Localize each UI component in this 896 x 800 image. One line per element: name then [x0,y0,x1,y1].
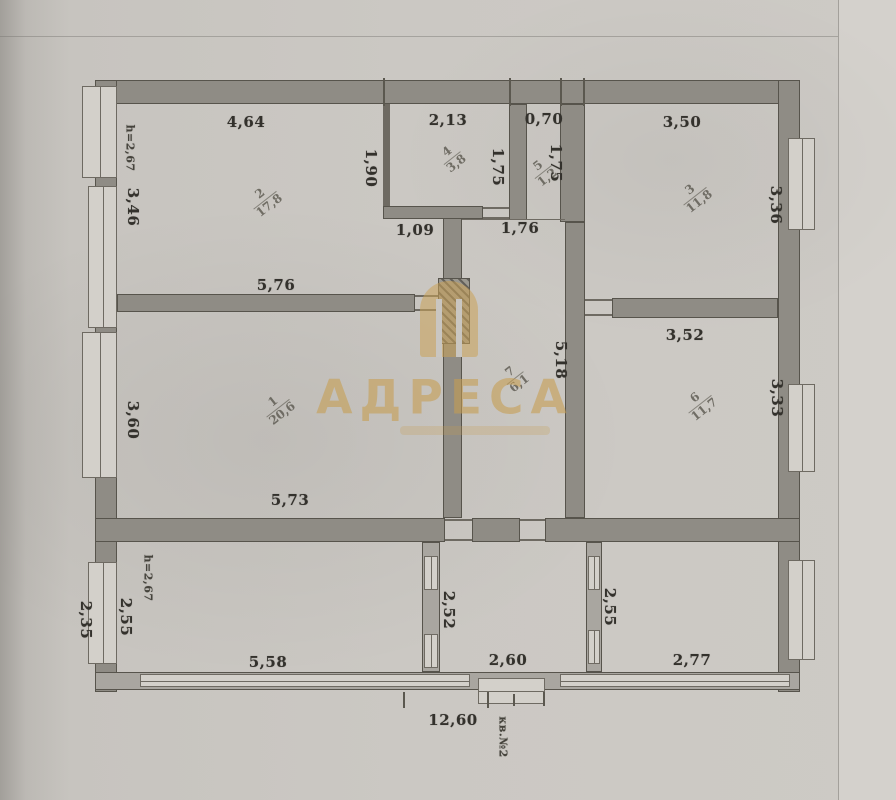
dimension-label: 3,50 [663,113,702,131]
dimension-label: 5,58 [249,653,288,671]
dimension-label: 2,77 [673,651,712,669]
dimension-label: 3,36 [767,186,785,225]
dimension-label: 0,70 [525,110,564,128]
dim-tick [487,692,489,708]
door-jamb [585,299,612,301]
room-label-6: 611,7 [680,384,721,425]
veranda-window [424,556,438,590]
dimension-label: 2,60 [489,651,528,669]
room-label-3: 311,8 [675,176,716,217]
window-left-3 [82,332,117,478]
dimension-label: 5,73 [271,491,310,509]
dimension-label: 12,60 [428,711,477,729]
dimension-label: 5,18 [552,341,570,380]
dimension-label: 2,55 [601,588,619,627]
dimension-label: 2,35 [77,601,95,640]
apartment-number-label: кв.№2 [497,716,510,758]
dimension-label: 3,33 [768,379,786,418]
wall-room3-room6-divider [612,298,778,318]
dimension-label: 1,76 [501,219,540,237]
wall-corridor-left [443,218,462,518]
dim-tick [403,692,405,708]
dimension-label: 1,09 [396,221,435,239]
door-jamb [483,207,509,209]
dimension-label: 3,46 [124,188,142,227]
veranda-window-bottom-left [140,674,470,687]
window-right-2 [788,384,815,472]
scanned-floor-plan-sheet: АДРЕСА 4,642,130,703,50h=2,673,461,901,7… [0,0,896,800]
dim-tick [583,78,585,106]
ceiling-height-label: h=2,67 [124,124,137,171]
door-jamb [445,519,472,521]
dimension-label: 2,13 [429,111,468,129]
dimension-label: 1,90 [362,149,380,188]
wall-house-bottom-a [95,518,445,542]
floor-plan: АДРЕСА 4,642,130,703,50h=2,673,461,901,7… [0,0,896,800]
chimney-flue-block [438,278,470,344]
window-left-2 [88,186,117,328]
room-label-1: 120,6 [258,388,299,429]
dimension-label: 1,75 [547,144,565,183]
door-jamb [445,539,472,541]
dim-tick [509,78,511,106]
window-left-1 [82,86,117,178]
veranda-window [588,556,600,590]
watermark-subtitle-smudge [400,426,550,435]
dim-tick [543,692,545,706]
veranda-window [424,634,438,668]
dim-tick [383,78,385,106]
dimension-label: 3,60 [124,401,142,440]
door-jamb [585,314,612,316]
ceiling-height-label: h=2,67 [142,554,155,601]
dimension-label: 5,76 [257,276,296,294]
room-label-2: 217,8 [245,180,286,221]
door-jamb [520,519,545,521]
wall-outer-top [95,80,800,104]
door-jamb [520,539,545,541]
dimension-label: 2,55 [117,598,135,637]
veranda-window-bottom-right [560,674,790,687]
dimension-label: 4,64 [227,113,266,131]
window-right-veranda [788,560,815,660]
dimension-label: 3,52 [666,326,705,344]
wall-house-bottom-b [472,518,520,542]
dim-tick [513,694,515,706]
wall-bath-bottom [383,206,483,219]
room-label-7: 76,1 [498,360,532,395]
room-label-4: 43,8 [435,140,469,175]
window-right-1 [788,138,815,230]
dim-tick [560,78,562,106]
wall-house-bottom-c [545,518,800,542]
veranda-window [588,630,600,664]
wall-room2-room1-divider [117,294,415,312]
dimension-label: 2,52 [440,591,458,630]
dimension-label: 1,75 [489,148,507,187]
wall-bath-left [383,104,390,214]
